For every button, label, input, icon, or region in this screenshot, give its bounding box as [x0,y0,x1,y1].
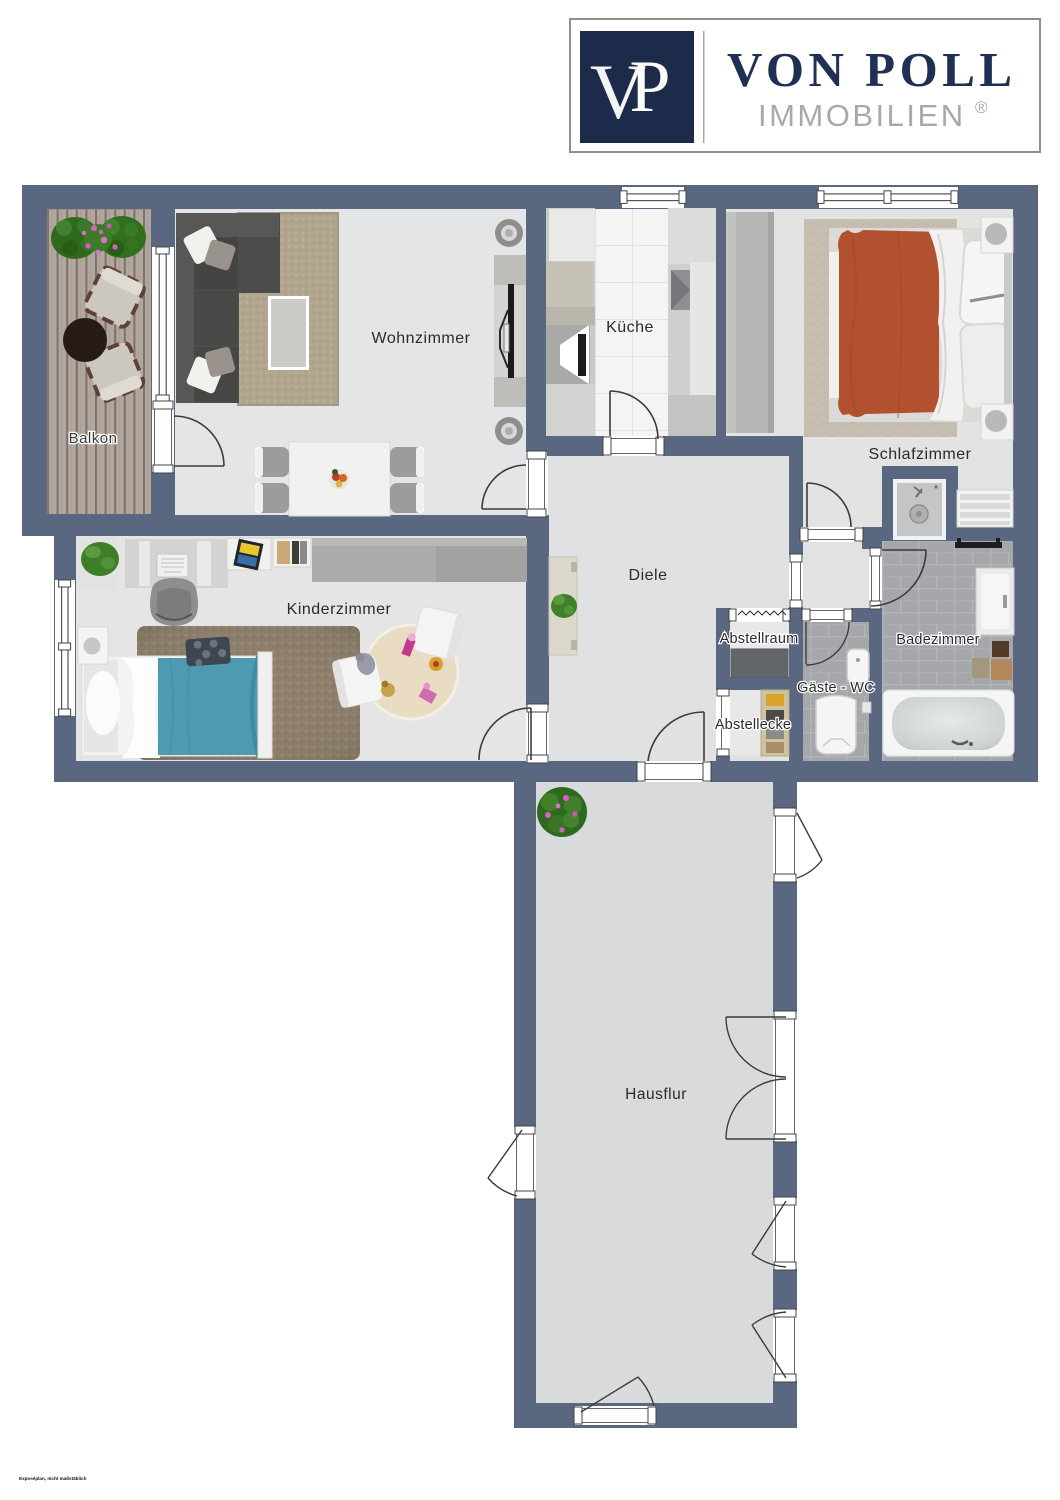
svg-text:Wohnzimmer: Wohnzimmer [372,330,471,347]
svg-text:Diele: Diele [629,567,668,584]
svg-text:Schlafzimmer: Schlafzimmer [869,446,972,463]
svg-text:IMMOBILIEN: IMMOBILIEN [758,98,966,133]
svg-text:Abstellecke: Abstellecke [715,717,791,733]
svg-text:Badezimmer: Badezimmer [896,632,979,648]
svg-text:Gäste - WC: Gäste - WC [797,680,875,696]
svg-text:Balkon: Balkon [69,430,118,447]
svg-text:Küche: Küche [606,319,654,336]
svg-text:®: ® [975,98,988,117]
svg-text:P: P [629,46,670,128]
svg-text:Exposéplan, nicht maßstäblich: Exposéplan, nicht maßstäblich [19,1476,87,1481]
svg-text:Abstellraum: Abstellraum [720,631,799,647]
svg-text:Kinderzimmer: Kinderzimmer [287,601,392,618]
svg-text:VON POLL: VON POLL [727,42,1017,97]
svg-text:Hausflur: Hausflur [625,1086,687,1103]
